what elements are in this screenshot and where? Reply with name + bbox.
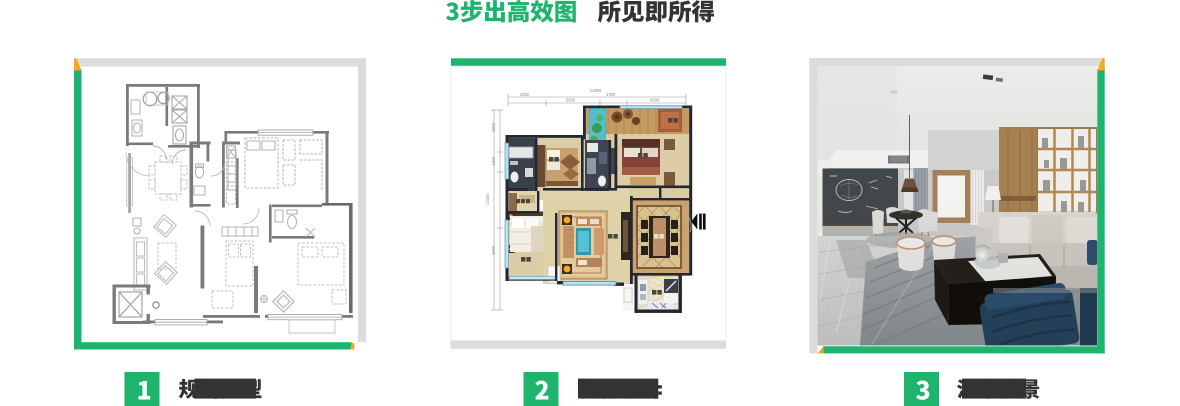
svg-text:1300: 1300 bbox=[491, 156, 496, 166]
svg-text:2900: 2900 bbox=[491, 122, 496, 132]
svg-text:2000: 2000 bbox=[520, 92, 530, 97]
svg-text:1700: 1700 bbox=[606, 92, 616, 97]
svg-text:5600: 5600 bbox=[566, 98, 576, 103]
svg-text:4500: 4500 bbox=[650, 98, 660, 103]
svg-text:11800: 11800 bbox=[590, 88, 602, 93]
svg-text:3600: 3600 bbox=[491, 245, 496, 255]
svg-text:12400: 12400 bbox=[485, 193, 490, 205]
